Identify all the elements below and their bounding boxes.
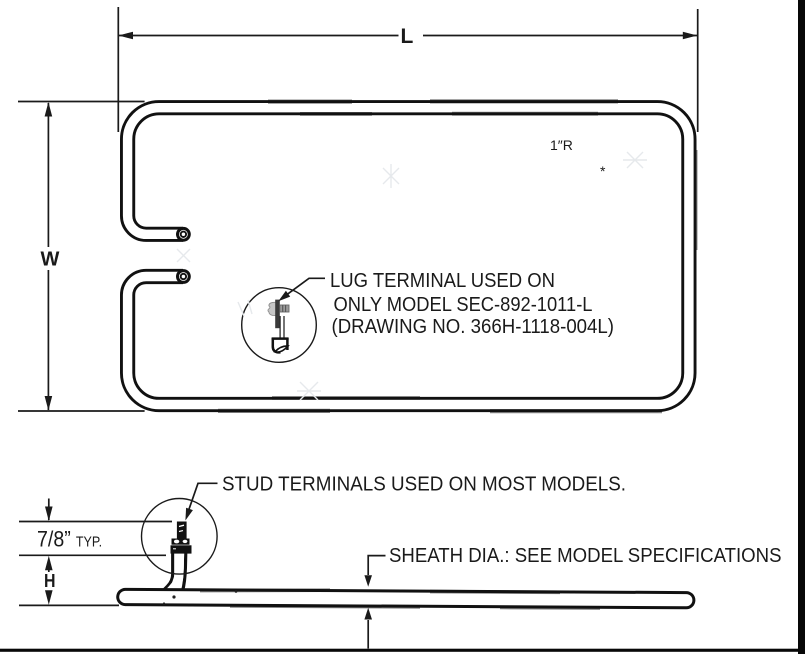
- svg-text:ONLY MODEL SEC-892-1011-L: ONLY MODEL SEC-892-1011-L: [334, 294, 593, 316]
- svg-text:W: W: [41, 248, 60, 270]
- svg-text:SHEATH DIA.: SEE MODEL SPECIFI: SHEATH DIA.: SEE MODEL SPECIFICATIONS: [389, 545, 782, 567]
- svg-text:STUD TERMINALS USED ON MOST MO: STUD TERMINALS USED ON MOST MODELS.: [222, 474, 626, 496]
- svg-text:LUG TERMINAL USED ON: LUG TERMINAL USED ON: [330, 270, 555, 292]
- svg-text:H: H: [44, 570, 56, 591]
- svg-text:TYP.: TYP.: [76, 534, 102, 551]
- svg-text:L: L: [401, 25, 414, 48]
- svg-text:*: *: [600, 163, 606, 179]
- svg-text:(DRAWING NO. 366H-1118-004L): (DRAWING NO. 366H-1118-004L): [332, 316, 615, 338]
- svg-text:7/8”: 7/8”: [37, 526, 71, 551]
- svg-text:1″R: 1″R: [550, 137, 573, 153]
